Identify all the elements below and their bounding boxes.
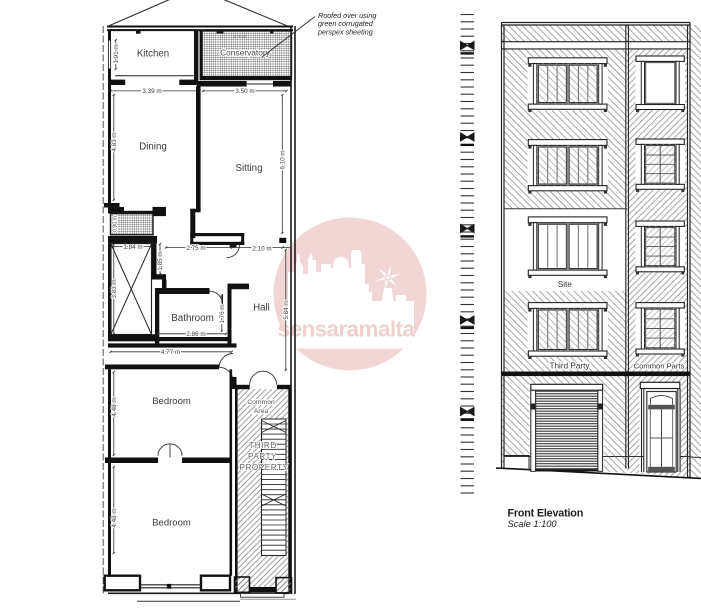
- svg-text:Sitting: Sitting: [236, 163, 263, 174]
- svg-text:Site: Site: [558, 280, 573, 289]
- svg-text:2.86 m: 2.86 m: [186, 331, 205, 338]
- svg-text:1.76 m: 1.76 m: [219, 304, 226, 323]
- svg-text:perspex sheeting: perspex sheeting: [317, 27, 373, 36]
- svg-text:2.75 m: 2.75 m: [186, 245, 205, 252]
- svg-text:0.90 m: 0.90 m: [113, 216, 119, 232]
- svg-text:Scale 1:100: Scale 1:100: [508, 519, 558, 529]
- svg-text:sensaramalta: sensaramalta: [278, 317, 416, 342]
- svg-text:PARTY: PARTY: [248, 452, 277, 461]
- svg-text:3.50 m: 3.50 m: [235, 88, 254, 95]
- svg-text:Bedroom: Bedroom: [152, 518, 191, 529]
- svg-text:Common Parts: Common Parts: [634, 362, 685, 371]
- svg-text:Hall: Hall: [253, 303, 270, 314]
- svg-text:THIRD: THIRD: [249, 441, 277, 450]
- svg-text:4.48 m: 4.48 m: [111, 508, 118, 527]
- svg-text:4.48 m: 4.48 m: [111, 397, 118, 416]
- svg-text:Kitchen: Kitchen: [137, 49, 169, 60]
- svg-text:4.77 m: 4.77 m: [161, 349, 180, 356]
- svg-text:3.83 m: 3.83 m: [111, 279, 118, 298]
- svg-text:Dining: Dining: [139, 141, 166, 152]
- svg-text:1.84 m: 1.84 m: [123, 244, 142, 251]
- svg-text:4.05 m: 4.05 m: [234, 34, 247, 39]
- svg-text:PROPERTY: PROPERTY: [240, 463, 289, 472]
- svg-text:Area: Area: [254, 408, 269, 415]
- svg-text:Third Party: Third Party: [549, 362, 590, 371]
- svg-text:Bathroom: Bathroom: [171, 313, 213, 324]
- svg-text:Common: Common: [247, 399, 275, 406]
- svg-text:Front Elevation: Front Elevation: [508, 508, 584, 520]
- svg-text:1.91 m: 1.91 m: [113, 44, 120, 63]
- svg-text:Bedroom: Bedroom: [152, 396, 191, 407]
- svg-text:3.39 m: 3.39 m: [142, 88, 161, 95]
- svg-text:5.84 m: 5.84 m: [283, 300, 290, 319]
- svg-text:2.10 m: 2.10 m: [252, 245, 271, 252]
- svg-text:1.85 m: 1.85 m: [157, 251, 164, 270]
- svg-text:6.10 m: 6.10 m: [280, 150, 287, 169]
- svg-text:4.83 m: 4.83 m: [111, 132, 118, 151]
